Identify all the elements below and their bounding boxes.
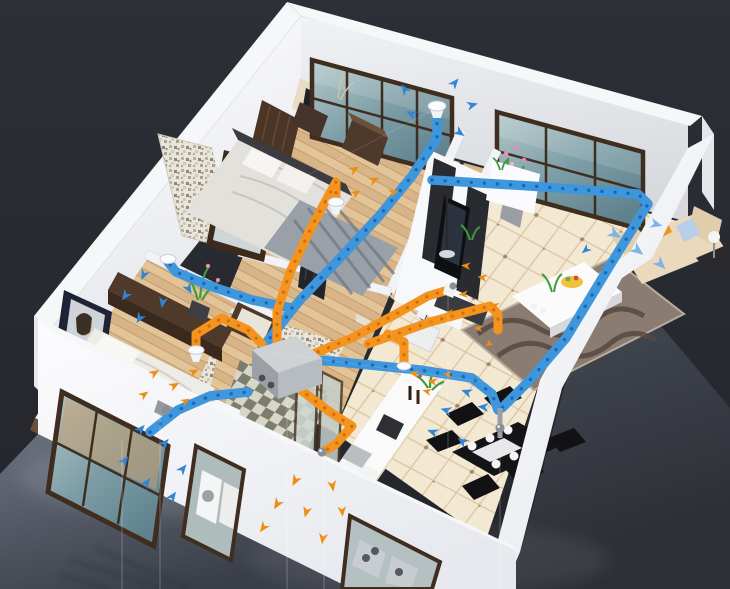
kitchen-return-vent [397,362,411,370]
hrv-port-1 [259,375,266,382]
screenshot-root [0,0,730,589]
intake-sphere [162,406,171,415]
hrv-port-2 [268,382,275,389]
exhaust-sphere [317,447,326,456]
second-bedroom-ceiling-diffuser [160,254,176,263]
fruit-bowl [561,276,583,288]
floorplan-3d-render [0,0,730,589]
